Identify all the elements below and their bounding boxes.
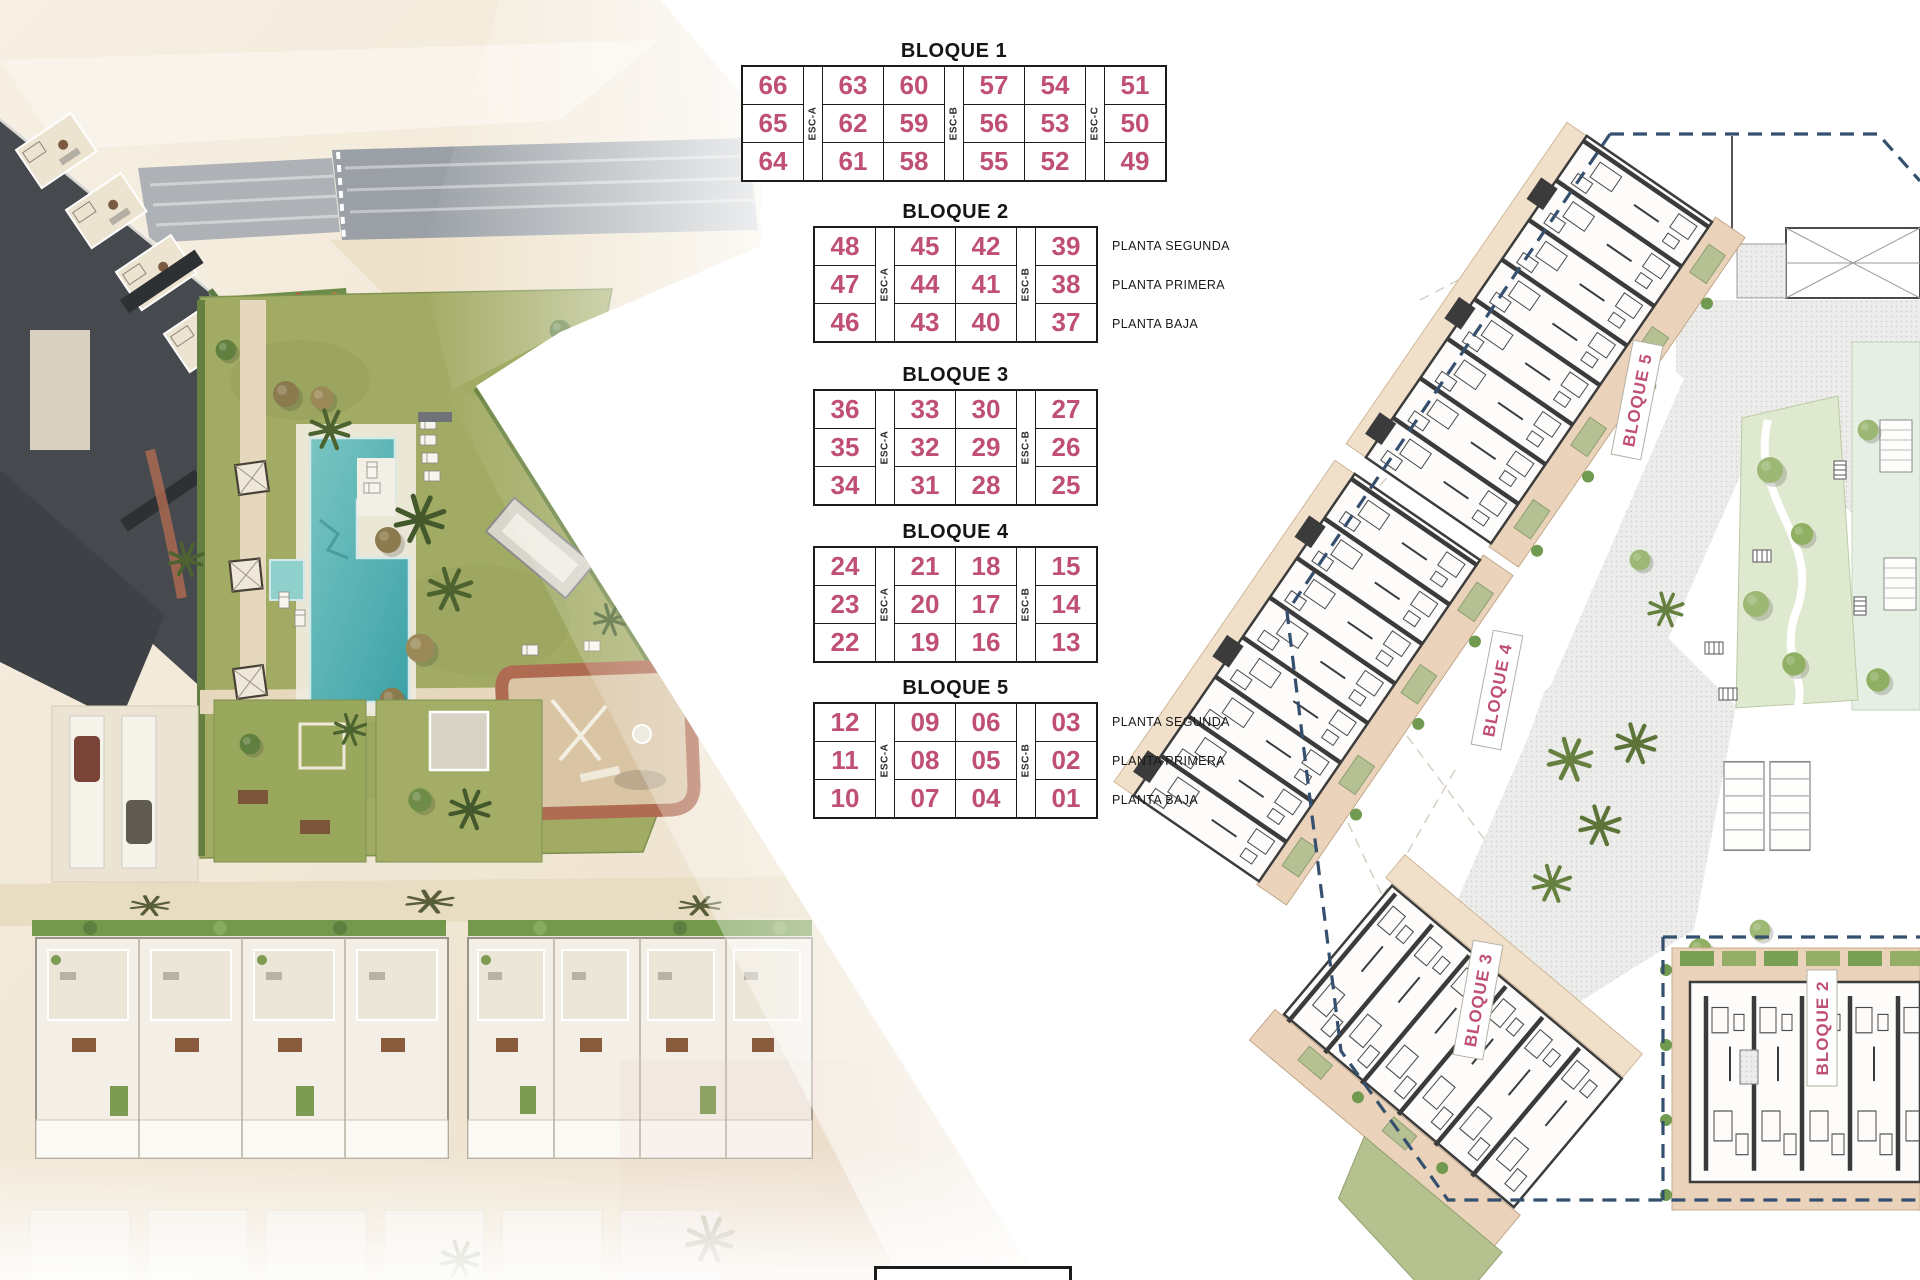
unit-number: 48 (815, 228, 875, 265)
unit-column: 151413 (1035, 548, 1096, 661)
unit-number: 33 (895, 391, 955, 428)
unit-number: 04 (956, 779, 1016, 817)
unit-column: 030201 (1035, 704, 1096, 817)
esc-column: ESC-B (1016, 391, 1035, 504)
bloque-3-table: BLOQUE 3 363534ESC-A333231302928ESC-B272… (813, 364, 1098, 506)
unit-number: 32 (895, 428, 955, 466)
bloque-4-grid: 242322ESC-A212019181716ESC-B151413 (813, 546, 1098, 663)
unit-number: 28 (956, 466, 1016, 504)
bloque-5-table: BLOQUE 5 121110ESC-A090807060504ESC-B030… (813, 677, 1098, 819)
unit-number: 24 (815, 548, 875, 585)
unit-number: 43 (895, 303, 955, 341)
bloque-2-grid: 484746ESC-A454443424140ESC-B393837 (813, 226, 1098, 343)
unit-number: 09 (895, 704, 955, 741)
unit-number: 30 (956, 391, 1016, 428)
unit-number: 02 (1036, 741, 1096, 779)
unit-column: 272625 (1035, 391, 1096, 504)
unit-number: 58 (884, 142, 944, 180)
unit-number: 01 (1036, 779, 1096, 817)
site-plan-drawing: BLOQUE 5 BLOQUE 4 BLOQUE 3 BLOQUE 2 (1112, 117, 1920, 1280)
unit-number: 46 (815, 303, 875, 341)
site-plan-page: BLOQUE 5 BLOQUE 4 BLOQUE 3 BLOQUE 2 BLOQ… (0, 0, 1920, 1280)
unit-column: 181716 (955, 548, 1016, 661)
plan-label-bloque-2: BLOQUE 2 (1807, 970, 1837, 1086)
esc-label: ESC-B (1021, 268, 1032, 302)
unit-column: 121110 (815, 704, 875, 817)
unit-number: 64 (743, 142, 803, 180)
esc-column: ESC-B (1016, 704, 1035, 817)
unit-column: 242322 (815, 548, 875, 661)
esc-column: ESC-A (875, 228, 894, 341)
unit-number: 56 (964, 104, 1024, 142)
unit-column: 363534 (815, 391, 875, 504)
bloque-2-table: BLOQUE 2 484746ESC-A454443424140ESC-B393… (813, 201, 1098, 343)
unit-number: 44 (895, 265, 955, 303)
unit-column: 636261 (822, 67, 883, 180)
unit-column: 090807 (894, 704, 955, 817)
esc-label: ESC-B (1021, 588, 1032, 622)
bloque-5-title: BLOQUE 5 (813, 677, 1098, 699)
unit-number: 38 (1036, 265, 1096, 303)
plan-bloque-2 (1660, 948, 1920, 1210)
unit-number: 31 (895, 466, 955, 504)
bloque-5-grid: 121110ESC-A090807060504ESC-B030201 (813, 702, 1098, 819)
unit-column: 424140 (955, 228, 1016, 341)
esc-column: ESC-B (1016, 228, 1035, 341)
unit-number: 34 (815, 466, 875, 504)
unit-number: 20 (895, 585, 955, 623)
partial-table (874, 1266, 1072, 1280)
unit-number: 41 (956, 265, 1016, 303)
esc-label: ESC-B (1021, 744, 1032, 778)
esc-column: ESC-C (1085, 67, 1104, 180)
unit-number: 63 (823, 67, 883, 104)
esc-column: ESC-A (803, 67, 822, 180)
unit-number: 19 (895, 623, 955, 661)
unit-column: 393837 (1035, 228, 1096, 341)
unit-number: 14 (1036, 585, 1096, 623)
unit-number: 49 (1105, 142, 1165, 180)
plan-label-bloque-4: BLOQUE 4 (1471, 630, 1523, 750)
unit-number: 50 (1105, 104, 1165, 142)
unit-number: 18 (956, 548, 1016, 585)
unit-number: 35 (815, 428, 875, 466)
unit-number: 61 (823, 142, 883, 180)
unit-number: 22 (815, 623, 875, 661)
bloque-4-title: BLOQUE 4 (813, 521, 1098, 543)
unit-number: 37 (1036, 303, 1096, 341)
unit-column: 333231 (894, 391, 955, 504)
unit-number: 16 (956, 623, 1016, 661)
unit-column: 515049 (1104, 67, 1165, 180)
unit-number: 53 (1025, 104, 1085, 142)
bloque-2-planta-labels: PLANTA SEGUNDAPLANTA PRIMERAPLANTA BAJA (1112, 226, 1230, 343)
unit-number: 51 (1105, 67, 1165, 104)
unit-number: 26 (1036, 428, 1096, 466)
unit-number: 25 (1036, 466, 1096, 504)
unit-number: 42 (956, 228, 1016, 265)
bloque-2-title: BLOQUE 2 (813, 201, 1098, 223)
unit-number: 66 (743, 67, 803, 104)
unit-number: 10 (815, 779, 875, 817)
unit-number: 27 (1036, 391, 1096, 428)
unit-number: 65 (743, 104, 803, 142)
esc-label: ESC-A (808, 107, 819, 141)
unit-number: 54 (1025, 67, 1085, 104)
unit-number: 60 (884, 67, 944, 104)
unit-number: 11 (815, 741, 875, 779)
bloque-1-grid: 666564ESC-A636261605958ESC-B575655545352… (741, 65, 1167, 182)
esc-label: ESC-C (1090, 107, 1101, 141)
unit-number: 45 (895, 228, 955, 265)
esc-column: ESC-A (875, 391, 894, 504)
planta-label: PLANTA BAJA (1112, 780, 1230, 819)
unit-column: 060504 (955, 704, 1016, 817)
bloque-3-grid: 363534ESC-A333231302928ESC-B272625 (813, 389, 1098, 506)
unit-number: 36 (815, 391, 875, 428)
bloque-1-table: BLOQUE 1 666564ESC-A636261605958ESC-B575… (741, 40, 1167, 182)
unit-number: 07 (895, 779, 955, 817)
esc-column: ESC-B (944, 67, 963, 180)
planta-label: PLANTA SEGUNDA (1112, 226, 1230, 265)
bloque-3-title: BLOQUE 3 (813, 364, 1098, 386)
esc-column: ESC-A (875, 704, 894, 817)
unit-column: 212019 (894, 548, 955, 661)
unit-column: 666564 (743, 67, 803, 180)
unit-column: 575655 (963, 67, 1024, 180)
unit-number: 29 (956, 428, 1016, 466)
unit-number: 62 (823, 104, 883, 142)
unit-number: 12 (815, 704, 875, 741)
garden-cells (52, 700, 542, 882)
esc-column: ESC-A (875, 548, 894, 661)
esc-label: ESC-B (949, 107, 960, 141)
unit-number: 52 (1025, 142, 1085, 180)
unit-number: 05 (956, 741, 1016, 779)
unit-number: 17 (956, 585, 1016, 623)
unit-number: 08 (895, 741, 955, 779)
bloque-4-table: BLOQUE 4 242322ESC-A212019181716ESC-B151… (813, 521, 1098, 663)
unit-number: 23 (815, 585, 875, 623)
unit-number: 03 (1036, 704, 1096, 741)
svg-text:BLOQUE 2: BLOQUE 2 (1813, 981, 1832, 1076)
unit-number: 59 (884, 104, 944, 142)
unit-column: 302928 (955, 391, 1016, 504)
bloque-5-planta-labels: PLANTA SEGUNDAPLANTA PRIMERAPLANTA BAJA (1112, 702, 1230, 819)
esc-label: ESC-A (880, 268, 891, 302)
unit-column: 545352 (1024, 67, 1085, 180)
unit-number: 15 (1036, 548, 1096, 585)
unit-number: 55 (964, 142, 1024, 180)
planta-label: PLANTA SEGUNDA (1112, 702, 1230, 741)
unit-number: 13 (1036, 623, 1096, 661)
unit-column: 605958 (883, 67, 944, 180)
planta-label: PLANTA PRIMERA (1112, 265, 1230, 304)
unit-column: 454443 (894, 228, 955, 341)
esc-label: ESC-B (1021, 431, 1032, 465)
unit-number: 39 (1036, 228, 1096, 265)
unit-column: 484746 (815, 228, 875, 341)
esc-label: ESC-A (880, 431, 891, 465)
unit-number: 47 (815, 265, 875, 303)
unit-number: 21 (895, 548, 955, 585)
unit-number: 06 (956, 704, 1016, 741)
unit-number: 40 (956, 303, 1016, 341)
bloque-1-title: BLOQUE 1 (741, 40, 1167, 62)
planta-label: PLANTA BAJA (1112, 304, 1230, 343)
esc-label: ESC-A (880, 588, 891, 622)
planta-label: PLANTA PRIMERA (1112, 741, 1230, 780)
unit-number: 57 (964, 67, 1024, 104)
esc-column: ESC-B (1016, 548, 1035, 661)
esc-label: ESC-A (880, 744, 891, 778)
